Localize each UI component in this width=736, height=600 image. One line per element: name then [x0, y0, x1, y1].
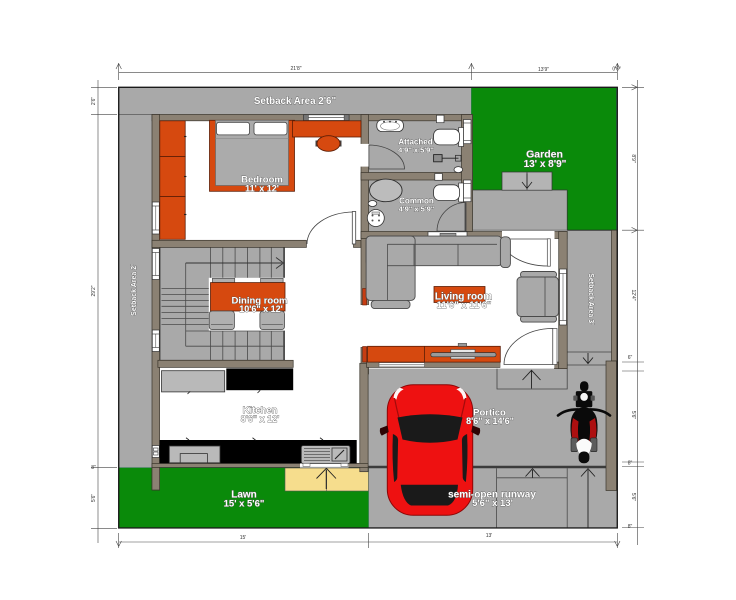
- svg-text:4'9" x 5'9": 4'9" x 5'9": [399, 205, 435, 214]
- svg-text:0'6": 0'6": [612, 67, 621, 73]
- svg-text:5'6" x 13': 5'6" x 13': [472, 498, 513, 509]
- svg-text:Setback Area 3': Setback Area 3': [587, 273, 594, 325]
- svg-text:29'2": 29'2": [91, 285, 97, 296]
- svg-text:Setback Area 2': Setback Area 2': [131, 264, 138, 316]
- svg-text:13': 13': [486, 533, 493, 539]
- svg-text:Setback Area 2'6": Setback Area 2'6": [254, 96, 336, 107]
- svg-text:11'6" x 11'6": 11'6" x 11'6": [437, 300, 492, 311]
- svg-text:2'6": 2'6": [91, 97, 97, 106]
- svg-text:8'9": 8'9": [630, 154, 636, 163]
- svg-text:5'6": 5'6": [630, 493, 636, 502]
- svg-text:8": 8": [91, 465, 96, 471]
- svg-text:8'6" x 14'6": 8'6" x 14'6": [466, 416, 514, 426]
- svg-text:12'4": 12'4": [630, 289, 636, 300]
- svg-text:5'6": 5'6": [630, 411, 636, 420]
- svg-text:10'6" x 12': 10'6" x 12': [239, 304, 283, 314]
- svg-text:8": 8": [628, 524, 633, 530]
- svg-text:13'9": 13'9": [538, 67, 549, 73]
- svg-text:21'8": 21'8": [290, 66, 301, 72]
- svg-text:8": 8": [628, 461, 633, 467]
- svg-text:8'6" x 12': 8'6" x 12': [241, 414, 280, 424]
- svg-text:13' x 8'9": 13' x 8'9": [524, 159, 567, 170]
- svg-text:6": 6": [628, 355, 633, 361]
- svg-text:15': 15': [240, 535, 247, 541]
- svg-text:4'9" x 5'9": 4'9" x 5'9": [398, 146, 434, 155]
- svg-text:5'6": 5'6": [91, 494, 97, 503]
- svg-text:15' x 5'6": 15' x 5'6": [224, 499, 265, 510]
- svg-text:11' x 12': 11' x 12': [245, 183, 279, 193]
